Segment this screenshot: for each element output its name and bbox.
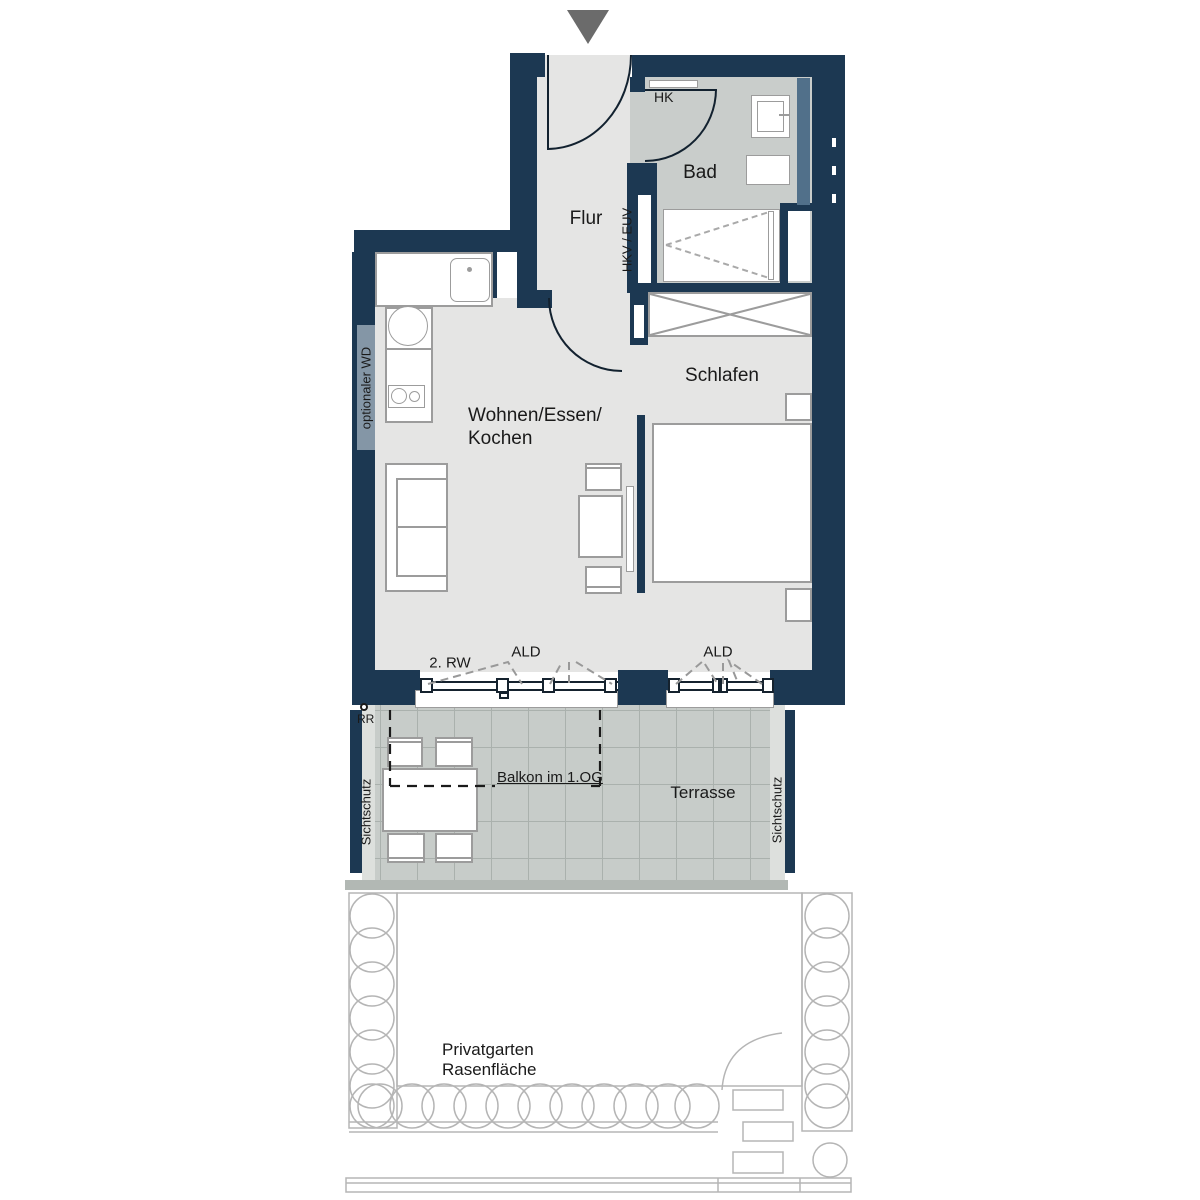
burner bbox=[409, 391, 420, 402]
chair-back-line bbox=[437, 741, 471, 743]
shower-tray bbox=[663, 209, 780, 282]
window-cap bbox=[720, 678, 728, 693]
garden-tree bbox=[813, 1143, 847, 1177]
garden-gate-arc bbox=[722, 1033, 782, 1090]
hedge-bushes-bottom bbox=[358, 1084, 719, 1128]
window-cap bbox=[542, 678, 555, 693]
label-ald-left: ALD bbox=[511, 644, 540, 661]
garden-step bbox=[733, 1090, 783, 1110]
radiator bbox=[649, 80, 698, 88]
wall bbox=[352, 670, 420, 705]
hedge-border-left bbox=[349, 893, 397, 1128]
kitchen-sink bbox=[450, 258, 490, 302]
wall bbox=[812, 55, 845, 700]
basin-faucet bbox=[779, 114, 790, 116]
wall-joint-mark bbox=[832, 138, 836, 147]
dining-chair bbox=[585, 566, 622, 594]
wall bbox=[780, 209, 788, 283]
hedge-bushes-right bbox=[805, 894, 849, 1128]
label-sichtschutz-right: Sichtschutz bbox=[770, 777, 785, 843]
label-hkv-euv: HKV / EUV bbox=[620, 208, 635, 272]
room-label-wohnen-line1: Wohnen/Essen/ bbox=[468, 404, 602, 427]
terrace-border-strip bbox=[345, 880, 788, 890]
label-terrasse: Terrasse bbox=[670, 783, 735, 803]
wall bbox=[354, 230, 537, 252]
hedge-border-bottom bbox=[349, 1122, 718, 1132]
shaft-door bbox=[638, 195, 651, 283]
terrace-table bbox=[382, 768, 478, 832]
dining-table bbox=[578, 495, 623, 558]
washer-dryer-circle bbox=[388, 306, 428, 346]
hedge-border-right bbox=[802, 893, 852, 1131]
burner bbox=[391, 388, 407, 404]
wall bbox=[510, 53, 537, 233]
label-privatgarten-line1: Privatgarten bbox=[442, 1040, 537, 1060]
label-privatgarten-line2: Rasenfläche bbox=[442, 1060, 537, 1080]
entrance-arrow-icon bbox=[567, 10, 609, 44]
garden-step bbox=[733, 1152, 783, 1173]
label-rr: RR bbox=[357, 712, 374, 726]
window-cap bbox=[762, 678, 774, 693]
partition-wall bbox=[637, 415, 645, 593]
garden bbox=[346, 893, 852, 1192]
window-cap bbox=[420, 678, 433, 693]
nightstand bbox=[785, 588, 812, 622]
garden-step bbox=[743, 1122, 793, 1141]
label-sichtschutz-left: Sichtschutz bbox=[359, 779, 374, 845]
room-label-wohnen-line2: Kochen bbox=[468, 427, 602, 450]
wall-joint-mark bbox=[832, 166, 836, 175]
hedge-bushes-left bbox=[350, 894, 394, 1128]
toilet bbox=[746, 155, 790, 185]
room-label-bad: Bad bbox=[683, 162, 717, 184]
duct-strip bbox=[797, 78, 810, 205]
sink-faucet-dot bbox=[467, 267, 472, 272]
privacy-screen-right bbox=[785, 710, 795, 873]
window-cap bbox=[496, 678, 509, 693]
label-hk: HK bbox=[654, 89, 673, 105]
shower-glass bbox=[768, 211, 774, 280]
label-balkon: Balkon im 1.OG bbox=[497, 769, 603, 786]
chair-back-line bbox=[587, 467, 620, 469]
garden-path-lines bbox=[346, 1178, 851, 1192]
window-left bbox=[422, 681, 618, 691]
shaft-door bbox=[634, 305, 644, 338]
label-ald-right: ALD bbox=[703, 644, 732, 661]
counter-divider bbox=[385, 348, 433, 350]
nightstand bbox=[785, 393, 812, 421]
label-privatgarten: Privatgarten Rasenfläche bbox=[442, 1040, 537, 1080]
chair-back-line bbox=[389, 741, 421, 743]
rr-marker-icon bbox=[360, 703, 368, 711]
chair-back-line bbox=[437, 857, 471, 859]
window-cap bbox=[604, 678, 617, 693]
room-label-schlafen: Schlafen bbox=[685, 365, 759, 387]
wall bbox=[517, 290, 552, 308]
window-cap bbox=[668, 678, 680, 693]
wall-joint-mark bbox=[832, 194, 836, 203]
room-label-flur: Flur bbox=[570, 208, 603, 230]
garden-path bbox=[346, 1178, 851, 1192]
bed bbox=[652, 423, 812, 583]
sofa-cushion-line bbox=[398, 526, 446, 528]
window-cap bbox=[712, 678, 720, 693]
washbasin-inner bbox=[757, 101, 784, 132]
wardrobe bbox=[648, 292, 812, 337]
wall bbox=[618, 670, 668, 705]
chair-back-line bbox=[587, 586, 620, 588]
wall-niche bbox=[497, 252, 517, 298]
room-label-wohnen: Wohnen/Essen/ Kochen bbox=[468, 404, 602, 450]
label-optionaler-wd: optionaler WD bbox=[359, 347, 374, 429]
bath-niche bbox=[788, 211, 810, 281]
window-cap bbox=[499, 692, 509, 699]
wall bbox=[352, 252, 375, 672]
window-sill bbox=[415, 690, 618, 708]
floorplan: Flur Bad Schlafen Wohnen/Essen/ Kochen H… bbox=[0, 0, 1200, 1200]
tv-board bbox=[626, 486, 634, 572]
chair-back-line bbox=[389, 857, 423, 859]
wall bbox=[630, 77, 645, 92]
label-rw: 2. RW bbox=[429, 655, 470, 672]
